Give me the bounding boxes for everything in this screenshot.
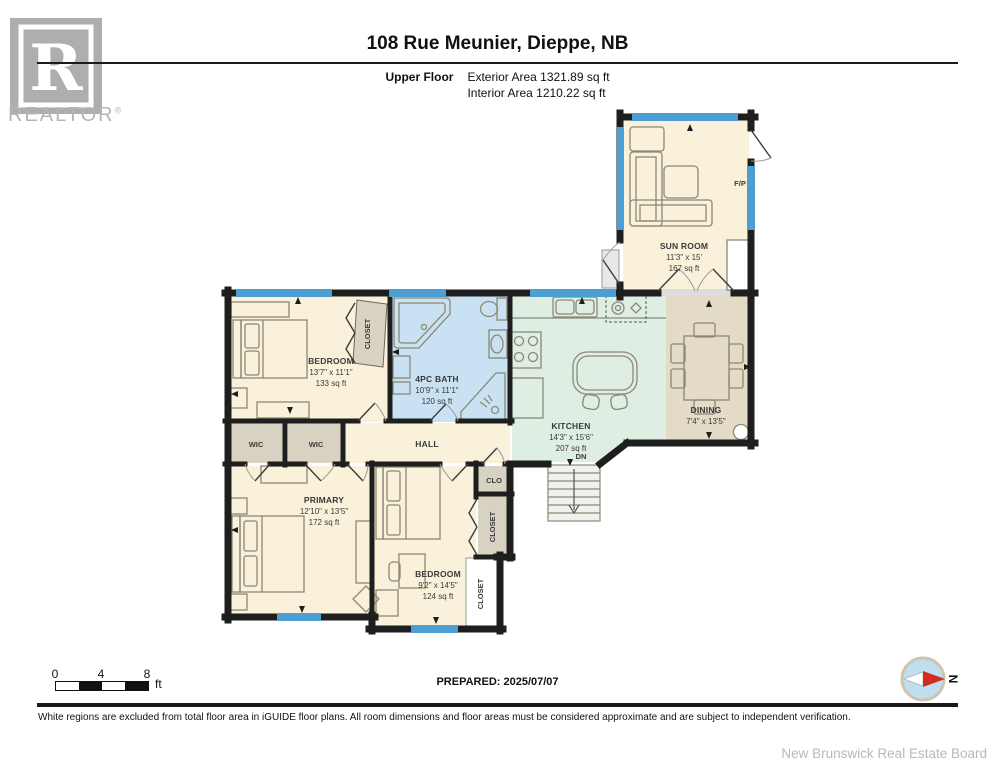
bedroom1-area: 133 sq ft — [316, 379, 347, 388]
hall-label: HALL — [415, 439, 438, 449]
wic-right-label: WIC — [309, 440, 324, 449]
bath-name: 4PC BATH — [415, 374, 458, 384]
dining-name: DINING — [691, 405, 722, 415]
bedroom2-area: 124 sq ft — [423, 592, 454, 601]
french-door-threshold — [658, 289, 734, 296]
window — [530, 289, 616, 297]
sunroom-right-door — [751, 130, 771, 161]
window — [617, 127, 624, 230]
kitchen-name: KITCHEN — [551, 421, 590, 431]
dining-dims: 7'4" x 13'5" — [686, 417, 726, 426]
attribution-text: New Brunswick Real Estate Board — [781, 746, 987, 761]
sunroom-cabinet-icon — [727, 240, 751, 290]
window — [748, 166, 755, 230]
window — [236, 289, 332, 297]
staircase — [548, 465, 600, 521]
sunroom-dims: 11'3" x 15' — [666, 253, 702, 262]
window — [632, 113, 738, 121]
window — [411, 625, 458, 633]
floorplan-page: { "header": { "logo_r": "R", "logo_text"… — [0, 0, 995, 768]
primary-dims: 12'10" x 13'5" — [300, 507, 348, 516]
bedroom2-name: BEDROOM — [415, 569, 461, 579]
sunroom-name: SUN ROOM — [660, 241, 708, 251]
prepared-date: PREPARED: 2025/07/07 — [0, 676, 995, 688]
bedroom1-closet-label: CLOSET — [363, 318, 372, 349]
bath-dims: 10'9" x 11'1" — [415, 386, 458, 395]
sunroom-area: 167 sq ft — [669, 264, 700, 273]
sunroom-step — [602, 250, 619, 288]
wic-left-label: WIC — [249, 440, 264, 449]
bedroom1-dims: 13'7" x 11'1" — [309, 368, 352, 377]
closet-lower-label: CLOSET — [476, 578, 485, 609]
primary-name: PRIMARY — [304, 495, 344, 505]
clo-label: CLO — [486, 476, 502, 485]
compass-north-label: N — [946, 675, 960, 684]
stairs-dn-label: DN — [576, 452, 587, 461]
compass: N — [893, 651, 963, 707]
footer-divider — [37, 703, 958, 707]
primary-area: 172 sq ft — [309, 518, 340, 527]
window — [389, 289, 446, 297]
primary-floor — [231, 466, 370, 616]
closet-middle-label: CLOSET — [488, 511, 497, 542]
window — [277, 613, 321, 621]
kitchen-dims: 14'3" x 15'6" — [549, 433, 593, 442]
bedroom1-name: BEDROOM — [308, 356, 354, 366]
bath-area: 120 sq ft — [422, 397, 453, 406]
floorplan-drawing: SUN ROOM 11'3" x 15' 167 sq ft F/P BEDRO… — [0, 0, 995, 768]
fireplace-label: F/P — [734, 179, 746, 188]
column-icon — [734, 425, 749, 440]
bedroom2-floor — [374, 466, 476, 628]
disclaimer-text: White regions are excluded from total fl… — [38, 712, 958, 723]
bedroom2-dims: 9'2" x 14'5" — [418, 581, 458, 590]
